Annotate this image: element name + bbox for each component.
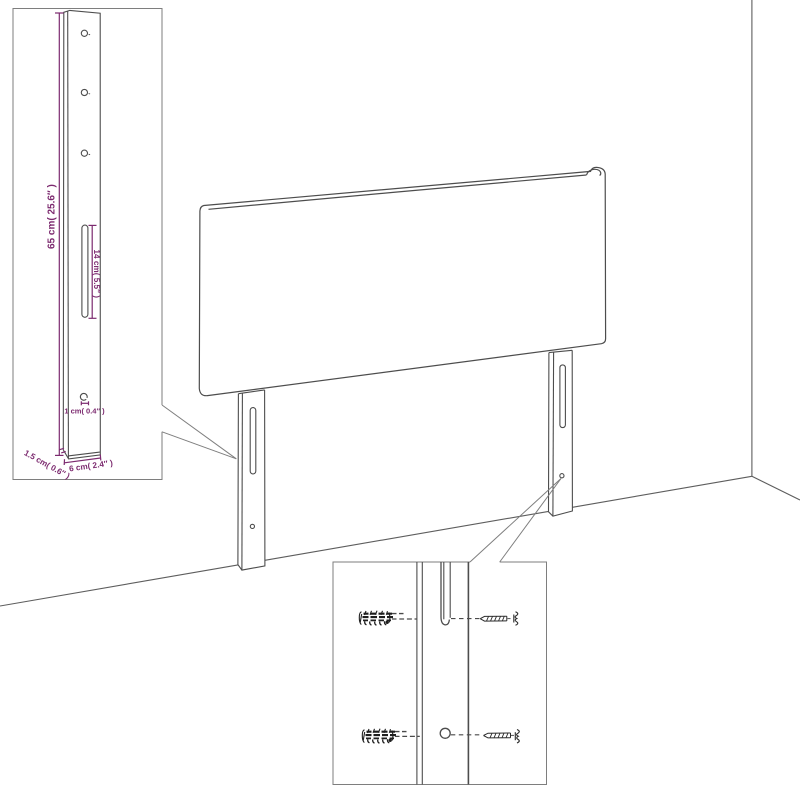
svg-text:1 cm( 0.4″ ): 1 cm( 0.4″ ) — [64, 406, 105, 415]
svg-text:65 cm( 25.6″ ): 65 cm( 25.6″ ) — [47, 184, 58, 249]
svg-text:14 cm( 5.5″ ): 14 cm( 5.5″ ) — [92, 250, 101, 299]
